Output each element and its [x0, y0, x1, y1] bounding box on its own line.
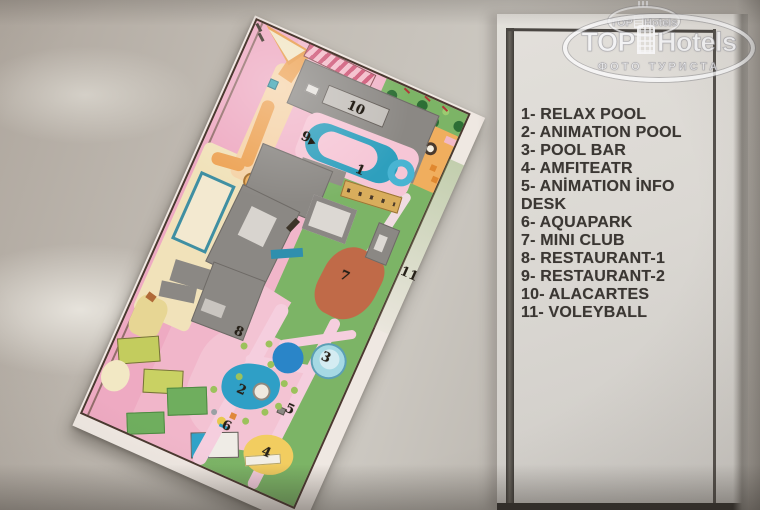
map-paper: 12345678910 11 [72, 15, 485, 510]
logo-subtitle: ФОТО ТУРИСТА [563, 61, 755, 73]
map-marker-2: 2 [234, 382, 248, 399]
legend-line: 5- ANİMATION İNFO [521, 178, 713, 196]
map-marker-7: 7 [337, 268, 351, 285]
map-marker-1: 1 [353, 162, 367, 179]
legend-line: 8- RESTAURANT-1 [521, 250, 713, 268]
legend-line: DESK [521, 196, 713, 214]
photo-of-resort-map: 12345678910 11 1- RELAX POOL2- ANIMATION… [0, 0, 760, 510]
legend-card: 1- RELAX POOL2- ANIMATION POOL3- POOL BA… [497, 14, 748, 510]
map-marker-8: 8 [232, 323, 246, 340]
map-marker-10: 10 [345, 98, 368, 119]
map-marker-6: 6 [219, 418, 233, 435]
legend-line: 2- ANIMATION POOL [521, 124, 713, 142]
logo-text: TOPHotels [563, 25, 755, 56]
legend-line: 4- AMFITEATR [521, 160, 713, 178]
card-frame-left [506, 28, 514, 510]
map-marker-5: 5 [282, 401, 296, 418]
legend-line: 7- MINI CLUB [521, 232, 713, 250]
legend-line: 3- POOL BAR [521, 142, 713, 160]
legend-list: 1- RELAX POOL2- ANIMATION POOL3- POOL BA… [521, 106, 713, 322]
legend-line: 9- RESTAURANT-2 [521, 268, 713, 286]
legend-line: 6- AQUAPARK [521, 214, 713, 232]
card-right-edge [733, 14, 748, 510]
legend-line: 11- VOLEYBALL [521, 304, 713, 322]
map-marker-9: 9 [298, 129, 312, 146]
map-marker-3: 3 [319, 349, 333, 366]
legend-line: 1- RELAX POOL [521, 106, 713, 124]
tophotels-watermark: TOPHotels ФОТО ТУРИСТА [563, 14, 755, 82]
card-frame-right [713, 29, 716, 507]
building-icon [637, 25, 655, 54]
map-marker-4: 4 [259, 444, 273, 461]
card-bottom-edge [497, 503, 748, 510]
legend-line: 10- ALACARTES [521, 286, 713, 304]
